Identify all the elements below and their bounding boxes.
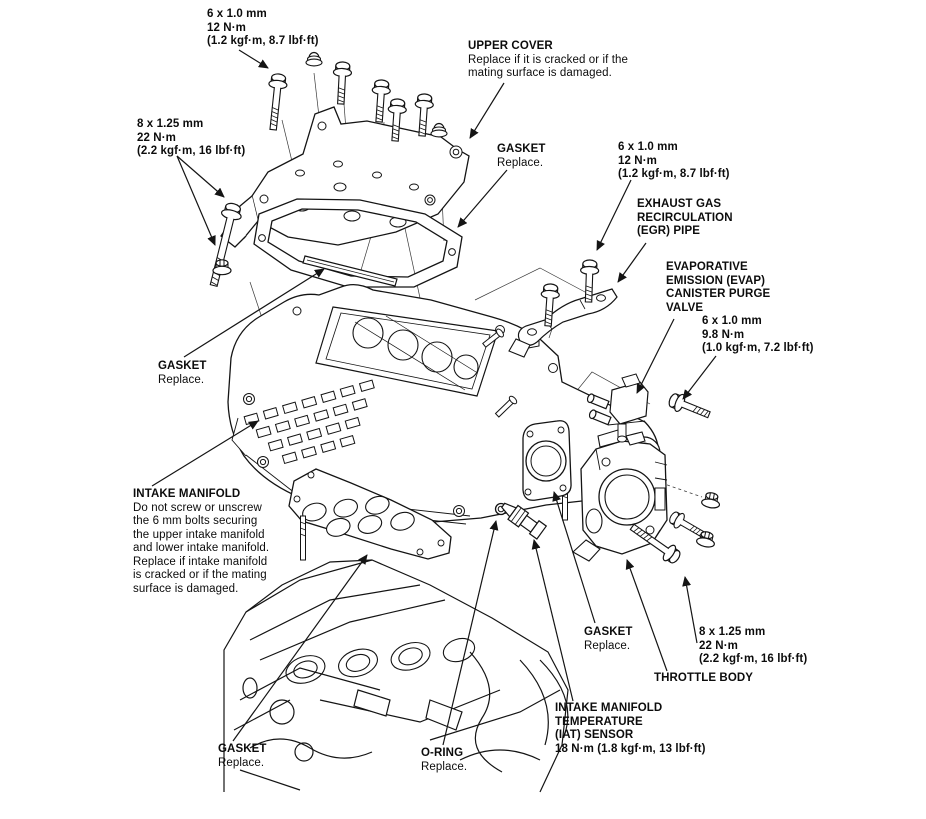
throttle-gasket-part [523,421,571,501]
torque-spec-line: 6 x 1.0 mm [618,141,730,155]
exploded-parts-diagram: 6 x 1.0 mm 12 N·m (1.2 kgf·m, 8.7 lbf·ft… [0,0,926,819]
torque-spec-line: 12 N·m [618,155,730,169]
part-note-line: the 6 mm bolts securing [133,515,269,529]
bolt [667,391,713,423]
torque-spec-line: (2.2 kgf·m, 16 lbf·ft) [699,653,807,667]
part-title-line: EXHAUST GAS [637,198,733,212]
torque-spec-line: 8 x 1.25 mm [137,118,245,132]
part-title-line: CANISTER PURGE [666,288,770,302]
callout-egr-pipe: EXHAUST GAS RECIRCULATION (EGR) PIPE [637,198,733,239]
part-note-line: Replace. [584,640,633,654]
torque-spec-line: 6 x 1.0 mm [702,315,814,329]
part-note-line: Replace if it is cracked or if the [468,54,628,68]
part-note-line: surface is damaged. [133,583,269,597]
part-note-line: Replace. [158,374,207,388]
callout-torque-6x10-egr: 6 x 1.0 mm 12 N·m (1.2 kgf·m, 8.7 lbf·ft… [618,141,730,182]
part-title-line: TEMPERATURE [555,716,706,730]
torque-spec-line: 22 N·m [137,132,245,146]
callout-upper-cover: UPPER COVER Replace if it is cracked or … [468,40,628,81]
torque-spec-line: 18 N·m (1.8 kgf·m, 13 lbf·ft) [555,743,706,757]
part-note-line: and lower intake manifold. [133,542,269,556]
callout-torque-8x125-left: 8 x 1.25 mm 22 N·m (2.2 kgf·m, 16 lbf·ft… [137,118,245,159]
callout-torque-6x10-top: 6 x 1.0 mm 12 N·m (1.2 kgf·m, 8.7 lbf·ft… [207,8,319,49]
egr-pipe-part [509,289,617,357]
part-title-line: RECIRCULATION [637,212,733,226]
part-title: UPPER COVER [468,40,628,54]
torque-spec-line: 12 N·m [207,22,319,36]
acorn-nut [431,124,447,137]
part-title: GASKET [158,360,207,374]
part-title: GASKET [497,143,546,157]
acorn-nut [306,53,322,66]
callout-evap-valve: EVAPORATIVE EMISSION (EVAP) CANISTER PUR… [666,261,770,315]
bolt [413,93,434,136]
callout-torque-8x125-right: 8 x 1.25 mm 22 N·m (2.2 kgf·m, 16 lbf·ft… [699,626,807,667]
bolt [264,73,288,131]
torque-spec-line: 9.8 N·m [702,329,814,343]
part-note-line: is cracked or if the mating [133,569,269,583]
flange-nut [701,491,721,509]
torque-spec-line: (1.0 kgf·m, 7.2 lbf·ft) [702,342,814,356]
bolt [370,79,391,122]
part-note-line: mating surface is damaged. [468,67,628,81]
callout-gasket-upper: GASKET Replace. [497,143,546,170]
part-title: INTAKE MANIFOLD [133,488,269,502]
callout-o-ring: O-RING Replace. [421,747,467,774]
part-note-line: the upper intake manifold [133,529,269,543]
torque-spec-line: 6 x 1.0 mm [207,8,319,22]
part-note-line: Replace. [497,157,546,171]
part-title-line: EMISSION (EVAP) [666,275,770,289]
part-title-line: INTAKE MANIFOLD [555,702,706,716]
callout-iat-sensor: INTAKE MANIFOLD TEMPERATURE (IAT) SENSOR… [555,702,706,756]
part-title: THROTTLE BODY [654,672,753,686]
torque-spec-line: 8 x 1.25 mm [699,626,807,640]
part-title-line: (EGR) PIPE [637,225,733,239]
callout-gasket-lower: GASKET Replace. [218,743,267,770]
bolt [667,509,708,542]
bolt [332,62,352,105]
torque-spec-line: 22 N·m [699,640,807,654]
part-title-line: EVAPORATIVE [666,261,770,275]
part-title: GASKET [584,626,633,640]
part-note-line: Do not screw or unscrew [133,502,269,516]
part-title-line: (IAT) SENSOR [555,729,706,743]
callout-torque-6x10-evap: 6 x 1.0 mm 9.8 N·m (1.0 kgf·m, 7.2 lbf·f… [702,315,814,356]
part-note-line: Replace. [218,757,267,771]
callout-gasket-throttle: GASKET Replace. [584,626,633,653]
callout-gasket-strip: GASKET Replace. [158,360,207,387]
part-title: GASKET [218,743,267,757]
torque-spec-line: (1.2 kgf·m, 8.7 lbf·ft) [618,168,730,182]
flange-nut [213,260,231,275]
part-title-line: VALVE [666,302,770,316]
torque-spec-line: (1.2 kgf·m, 8.7 lbf·ft) [207,35,319,49]
part-note-line: Replace. [421,761,467,775]
part-title: O-RING [421,747,467,761]
torque-spec-line: (2.2 kgf·m, 16 lbf·ft) [137,145,245,159]
callout-intake-manifold: INTAKE MANIFOLD Do not screw or unscrew … [133,488,269,596]
part-note-line: Replace if intake manifold [133,556,269,570]
callout-throttle-body: THROTTLE BODY [654,672,753,686]
